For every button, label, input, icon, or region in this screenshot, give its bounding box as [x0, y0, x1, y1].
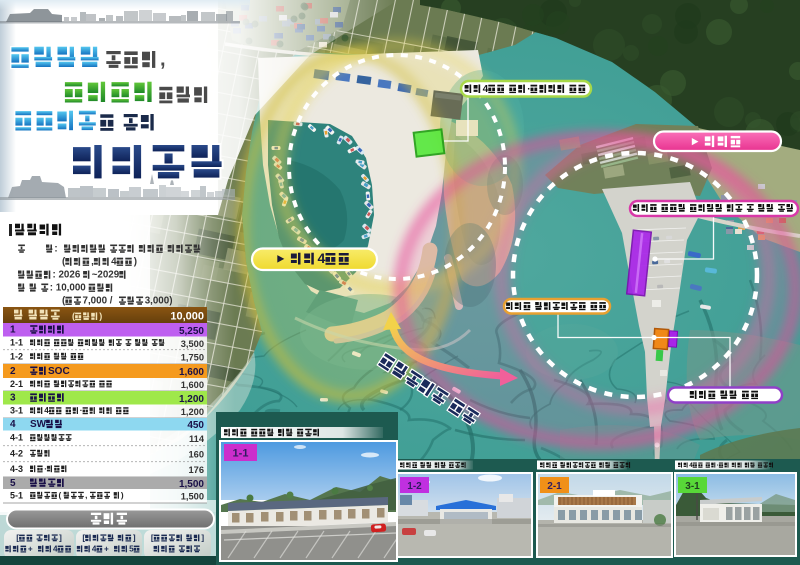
svg-text:(: ( — [59, 491, 62, 500]
svg-text:SOC: SOC — [48, 366, 70, 377]
svg-text:+: + — [28, 544, 33, 553]
svg-text:~2029: ~2029 — [92, 270, 120, 281]
svg-text:1-2: 1-2 — [10, 351, 23, 361]
svg-text:2-1: 2-1 — [547, 481, 562, 492]
svg-text:1-2: 1-2 — [407, 481, 422, 492]
svg-text:3,000): 3,000) — [145, 296, 173, 307]
svg-text:·: · — [44, 464, 47, 473]
svg-text:·: · — [717, 462, 719, 469]
svg-text:1,500: 1,500 — [179, 479, 204, 490]
svg-text:4-2: 4-2 — [10, 448, 23, 458]
svg-text:(: ( — [72, 311, 75, 321]
svg-text:]: ] — [201, 533, 204, 542]
svg-text:[: [ — [82, 533, 85, 542]
svg-text:5,250: 5,250 — [179, 326, 204, 337]
svg-text:160: 160 — [188, 450, 204, 460]
svg-text:4: 4 — [44, 406, 49, 415]
svg-text:·: · — [527, 84, 530, 95]
svg-text:·: · — [80, 406, 83, 415]
svg-text:): ) — [134, 257, 137, 268]
svg-text:,: , — [85, 491, 87, 500]
svg-text:]: ] — [59, 533, 62, 542]
svg-text:]: ] — [133, 533, 136, 542]
svg-text:1,750: 1,750 — [181, 353, 204, 363]
svg-text:+: + — [104, 544, 109, 553]
svg-text:3-1: 3-1 — [685, 481, 700, 492]
svg-text:176: 176 — [188, 465, 204, 475]
svg-text:1,200: 1,200 — [179, 394, 204, 405]
svg-text:4: 4 — [483, 84, 489, 95]
svg-text:[: [ — [16, 533, 19, 542]
svg-text:4: 4 — [10, 419, 16, 430]
svg-text:: 10,000: : 10,000 — [50, 283, 87, 294]
svg-text:SW: SW — [30, 419, 47, 430]
svg-text:[: [ — [151, 533, 154, 542]
svg-text:4: 4 — [318, 250, 326, 266]
svg-text:114: 114 — [189, 434, 205, 444]
svg-text:2: 2 — [10, 366, 16, 377]
svg-text:1,600: 1,600 — [181, 380, 204, 390]
svg-text:4: 4 — [689, 462, 693, 469]
svg-text:1,600: 1,600 — [179, 367, 204, 378]
svg-text:): ) — [121, 491, 124, 500]
svg-text:): ) — [99, 311, 102, 321]
svg-text:4: 4 — [53, 544, 58, 553]
svg-text:3-1: 3-1 — [10, 406, 23, 416]
svg-text:10,000: 10,000 — [170, 311, 204, 323]
svg-text:: 2026: : 2026 — [53, 270, 81, 281]
svg-text:1-1: 1-1 — [10, 338, 23, 348]
svg-text:,: , — [91, 257, 94, 268]
svg-text:3: 3 — [10, 393, 16, 404]
svg-text:5-1: 5-1 — [10, 490, 23, 500]
svg-text:5: 5 — [129, 544, 134, 553]
svg-text:5: 5 — [10, 478, 16, 489]
svg-text:7,000 /: 7,000 / — [83, 296, 113, 307]
svg-text:3,500: 3,500 — [181, 339, 204, 349]
svg-text:4: 4 — [92, 544, 97, 553]
svg-text:450: 450 — [187, 420, 204, 431]
svg-text:1-1: 1-1 — [233, 448, 249, 460]
svg-text:,: , — [160, 49, 166, 71]
svg-text:4-3: 4-3 — [10, 464, 23, 474]
svg-text:2-1: 2-1 — [10, 379, 23, 389]
svg-text::: : — [54, 244, 57, 255]
svg-text:1,500: 1,500 — [181, 492, 204, 502]
svg-text:1: 1 — [10, 325, 16, 336]
svg-text:4: 4 — [111, 257, 117, 268]
svg-text:1,200: 1,200 — [181, 407, 204, 417]
svg-text:4-1: 4-1 — [10, 433, 23, 443]
